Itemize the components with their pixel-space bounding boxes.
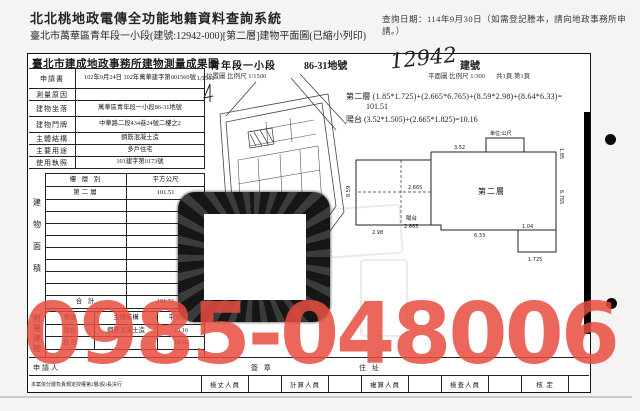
table-row: 申請書 102年9月24日 102年萬華建字第001560號 [29,69,204,89]
row-label: 測量原因 [29,89,76,100]
row-value: 中華路二段434巷24號二樓之2 [76,117,204,132]
col-floor: 樓 層 別 [46,174,127,186]
document-subtitle: 臺北市萬華區青年段一小段(建號:12942-000)[第二層]建物平面圖(已縮小… [30,27,366,42]
row-label: 申請書 [29,69,76,88]
map-scale-label: 1/1500 [197,76,215,82]
svg-text:2.665: 2.665 [408,185,422,191]
table-row: 主要用途 多戶住宅 [29,145,204,157]
row-value: 102年9月24日 102年萬華建字第001560號 [76,69,204,88]
svg-text:3.52: 3.52 [454,145,465,151]
row-value [76,89,204,100]
scan-bottom-line [0,396,632,398]
plan-room-label: 第二層 [478,186,505,196]
subject-parcel-hatched [248,128,274,148]
table-row: 建物門牌 中華路二段434巷24號二樓之2 [29,117,204,133]
area-formula-line2: 101.51 [366,102,388,111]
row-value: 多戶住宅 [76,145,204,156]
row-value: 101建字第0173號 [76,157,204,168]
balcony-formula: 陽台 (3.52*1.505)+(2.665*1.825)=10.16 [346,114,478,125]
north-arrow-icon [204,84,213,102]
row-value: 萬華區青年段一小段86-31地號 [76,101,204,116]
svg-text:2.665: 2.665 [404,224,418,230]
svg-text:6.33: 6.33 [474,233,485,239]
plan-scale: 平面圖 比例尺 1/300 [428,70,485,80]
svg-text:1.04: 1.04 [522,224,533,230]
plan-balcony-label: 陽台 [406,214,418,222]
building-info-table: 申請書 102年9月24日 102年萬華建字第001560號 測量原因 建物坐落… [29,68,205,169]
col-area: 平方公尺 [127,174,204,186]
red-phone-watermark: 0985-048006 [0,290,640,379]
plan-unit-label: 單位:公尺 [490,130,512,137]
system-title: 北北桃地政電傳全功能地籍資料查詢系統 [30,8,282,27]
row-label: 主要用途 [29,145,76,156]
table-row: 使用執照 101建字第0173號 [29,157,204,169]
page-info: 共1頁 第1頁 [496,70,530,80]
row-label: 建物門牌 [29,117,76,132]
row-label: 建物坐落 [29,101,76,116]
floor-name: 第二層 [46,187,127,199]
parcel-number: 86-31地號 [304,57,347,72]
table-row: 建物坐落 萬華區青年段一小段86-31地號 [29,101,204,117]
svg-text:1.725: 1.725 [528,257,542,263]
faint-watermark-mark [326,203,403,258]
row-value: 鋼筋混凝土造 [76,133,204,144]
table-row: 測量原因 [29,89,204,101]
area-formula-line1: 第二層 (1.85*1.725)+(2.665*6.765)+(8.59*2.9… [346,91,562,102]
row-label: 主體結構 [29,133,76,144]
svg-text:1.85: 1.85 [558,148,564,159]
area-header-row: 樓 層 別 平方公尺 [46,173,204,187]
binder-hole [605,134,616,145]
query-date-note: 查詢日期：114年9月30日（如需登記謄本，請向地政事務所申請。） [382,13,640,37]
svg-text:6.765: 6.765 [558,190,564,204]
svg-text:8.59: 8.59 [346,186,352,197]
building-number-handwritten: 12942 [389,43,458,74]
row-label: 使用執照 [29,157,76,168]
table-row: 主體結構 鋼筋混凝土造 [29,133,204,145]
